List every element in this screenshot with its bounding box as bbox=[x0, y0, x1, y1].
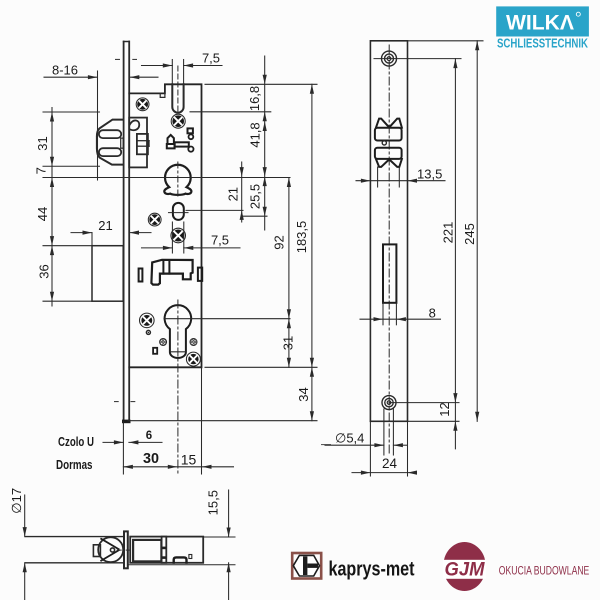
svg-text:21: 21 bbox=[98, 218, 112, 233]
svg-text:25,5: 25,5 bbox=[247, 184, 262, 209]
svg-text:OKUCIA BUDOWLANE: OKUCIA BUDOWLANE bbox=[499, 564, 590, 578]
svg-text:245: 245 bbox=[462, 223, 477, 245]
svg-text:15,5: 15,5 bbox=[206, 490, 221, 515]
svg-text:Dormas: Dormas bbox=[56, 458, 93, 472]
svg-text:30: 30 bbox=[143, 451, 159, 467]
svg-text:16,8: 16,8 bbox=[247, 86, 262, 111]
svg-text:Czolo U: Czolo U bbox=[58, 435, 94, 449]
svg-text:21: 21 bbox=[225, 187, 240, 201]
svg-text:GJM: GJM bbox=[445, 560, 486, 581]
svg-text:SCHLIESSTECHNIK: SCHLIESSTECHNIK bbox=[497, 36, 588, 51]
svg-text:7: 7 bbox=[33, 167, 48, 174]
svg-text:24: 24 bbox=[382, 456, 398, 471]
svg-text:WILKΛ: WILKΛ bbox=[506, 10, 575, 34]
svg-text:13,5: 13,5 bbox=[417, 167, 442, 182]
svg-text:kaprys-met: kaprys-met bbox=[329, 558, 415, 581]
svg-text:41,8: 41,8 bbox=[247, 122, 262, 147]
svg-text:6: 6 bbox=[146, 430, 152, 442]
svg-text:7,5: 7,5 bbox=[211, 232, 229, 247]
svg-text:92: 92 bbox=[271, 235, 286, 249]
svg-text:15: 15 bbox=[181, 451, 197, 467]
svg-text:7,5: 7,5 bbox=[202, 50, 220, 65]
svg-text:31: 31 bbox=[35, 136, 50, 150]
svg-text:34: 34 bbox=[296, 387, 311, 401]
svg-text:221: 221 bbox=[440, 222, 455, 244]
svg-text:8-16: 8-16 bbox=[52, 63, 78, 78]
svg-text:36: 36 bbox=[36, 264, 51, 278]
svg-text:31: 31 bbox=[280, 336, 295, 350]
svg-text:12: 12 bbox=[437, 402, 452, 416]
svg-text:183,5: 183,5 bbox=[294, 221, 309, 254]
svg-text:∅17: ∅17 bbox=[9, 488, 24, 514]
svg-text:∅5,4: ∅5,4 bbox=[335, 431, 364, 446]
svg-text:44: 44 bbox=[35, 207, 50, 221]
svg-text:8: 8 bbox=[429, 305, 436, 320]
